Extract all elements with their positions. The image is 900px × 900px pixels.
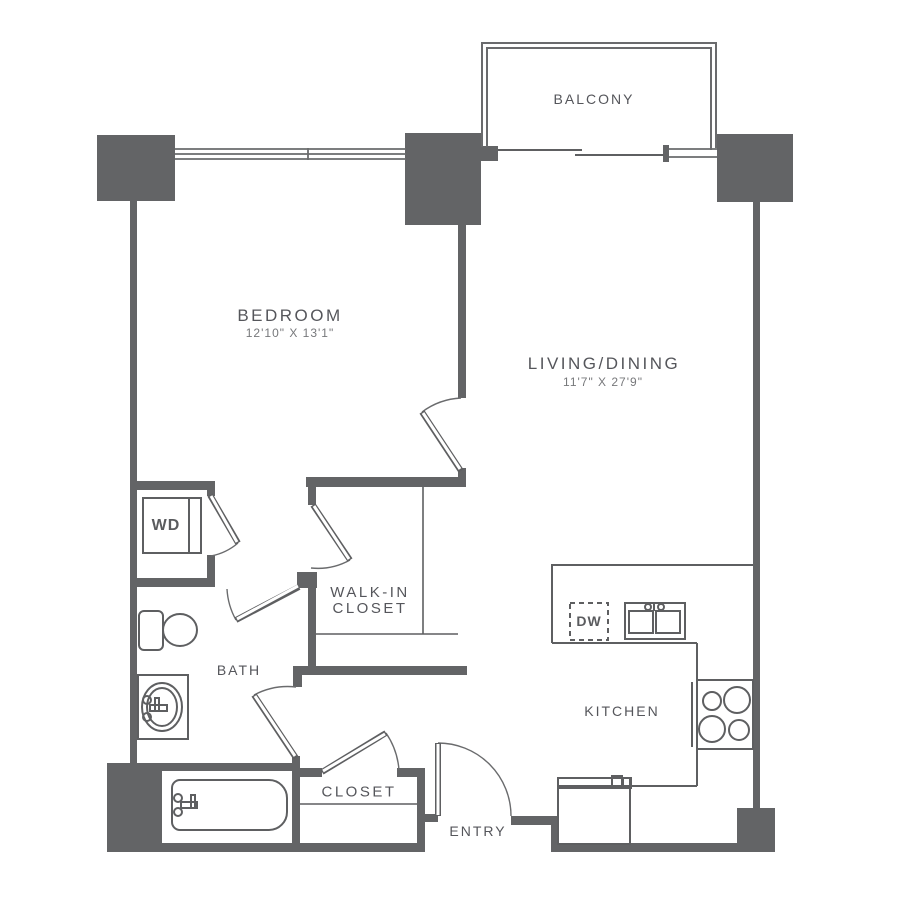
column-top-middle [405, 133, 481, 225]
wall-right [753, 200, 760, 810]
wall-walkin-bottom [293, 666, 467, 675]
walkin-closet-label-line1: WALK-IN [330, 585, 409, 601]
bath-label: BATH [217, 662, 261, 678]
dishwasher-label: DW [576, 613, 601, 629]
kitchen-label: KITCHEN [584, 703, 659, 719]
wall-walkin-top [306, 477, 466, 487]
bathtub [172, 780, 287, 830]
entry-door [438, 743, 511, 816]
wall-entry-bottom [511, 816, 558, 825]
wall-walkin-left-b [308, 588, 316, 668]
wall-walkin-step [293, 666, 302, 687]
balcony-sliding-door [498, 150, 664, 155]
living-dining-dimensions: 11'7" X 27'9" [563, 375, 643, 389]
wall-balcony-door-stub [480, 146, 498, 161]
bedroom-dimensions: 12'10" X 13'1" [246, 326, 335, 340]
living-dining-label: LIVING/DINING [528, 354, 680, 374]
wall-wd-right-lower [207, 555, 215, 581]
entry-label: ENTRY [449, 823, 506, 839]
walkin-closet-door [311, 505, 350, 568]
wall-bottom-left [107, 843, 425, 852]
hallway-door [227, 586, 299, 620]
structural-columns [97, 133, 793, 852]
toilet [139, 611, 197, 650]
floor-plan: BALCONY BEDROOM 12'10" X 13'1" LIVING/DI… [0, 0, 900, 900]
wall-bedroom-living-upper [458, 223, 466, 398]
floor-plan-drawing [0, 0, 900, 900]
kitchen-counter [552, 565, 753, 786]
wall-wd-bottom [133, 578, 215, 587]
column-bottom-left [107, 763, 162, 852]
bath-door [254, 687, 296, 758]
bedroom-window [175, 148, 406, 160]
vanity-sink [138, 675, 188, 739]
closet-label: CLOSET [321, 784, 396, 801]
bedroom-label: BEDROOM [237, 306, 342, 326]
wall-wd-top [133, 481, 215, 490]
wall-closet-top-left [294, 768, 322, 777]
wall-wd-right-upper [207, 481, 215, 496]
kitchen-sink [625, 603, 685, 639]
balcony-label: BALCONY [554, 91, 635, 107]
column-top-right [717, 134, 793, 202]
wd-closet-door [210, 495, 238, 556]
shelving [300, 487, 458, 804]
wall-walkin-left-stub [297, 572, 317, 588]
walkin-closet-label-line2: CLOSET [330, 601, 409, 617]
living-window [669, 149, 717, 157]
bedroom-door [422, 398, 461, 471]
stove [692, 680, 753, 749]
wall-closet-right [417, 768, 425, 852]
washer-dryer-label: WD [152, 517, 181, 535]
wall-tub-alcove [160, 763, 293, 771]
balcony-door-jamb [663, 145, 669, 162]
closet-door [322, 733, 399, 772]
walkin-closet-label: WALK-IN CLOSET [330, 585, 409, 617]
column-top-left [97, 135, 175, 201]
wall-walkin-left-a [308, 477, 316, 505]
